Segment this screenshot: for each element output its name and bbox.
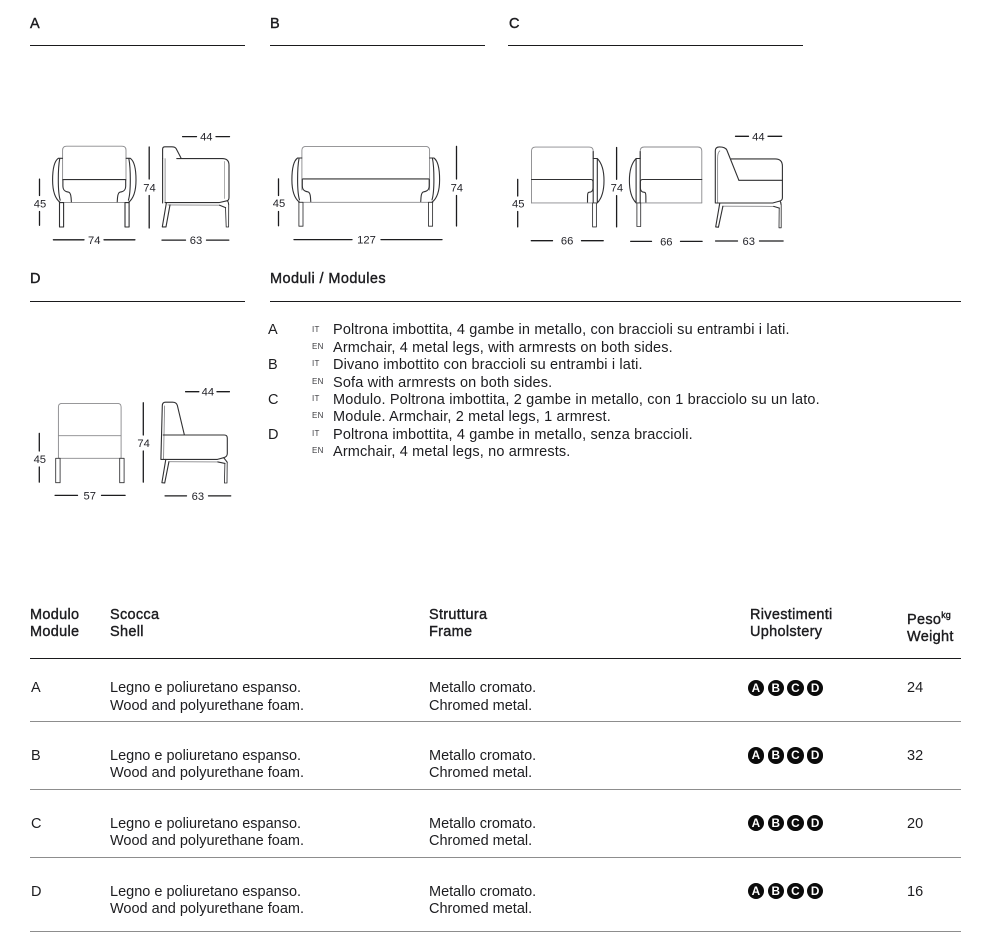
svg-text:63: 63 xyxy=(742,236,754,248)
svg-text:74: 74 xyxy=(611,182,623,194)
svg-text:74: 74 xyxy=(88,235,100,247)
svg-text:63: 63 xyxy=(192,491,204,503)
svg-text:74: 74 xyxy=(451,182,463,194)
svg-text:66: 66 xyxy=(660,236,672,248)
svg-text:45: 45 xyxy=(34,454,46,466)
svg-text:74: 74 xyxy=(143,182,155,194)
svg-text:74: 74 xyxy=(137,438,149,450)
svg-text:44: 44 xyxy=(200,132,212,144)
svg-text:127: 127 xyxy=(357,235,376,247)
svg-text:66: 66 xyxy=(561,236,573,248)
svg-text:45: 45 xyxy=(273,198,285,210)
svg-text:44: 44 xyxy=(202,387,214,399)
svg-text:45: 45 xyxy=(34,199,46,211)
svg-text:63: 63 xyxy=(190,235,202,247)
svg-text:57: 57 xyxy=(83,490,95,502)
svg-text:45: 45 xyxy=(512,198,524,210)
svg-text:44: 44 xyxy=(752,131,764,143)
